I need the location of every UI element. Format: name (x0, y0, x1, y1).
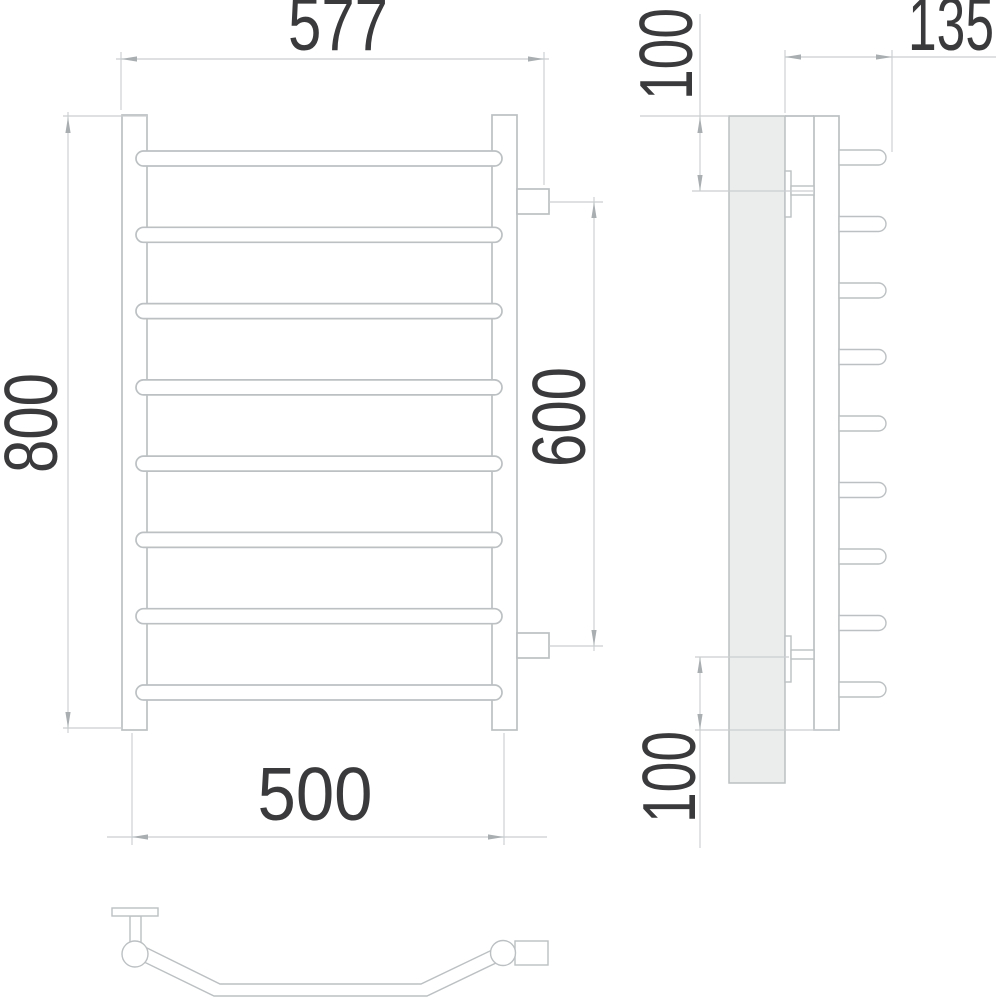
front-bars (136, 151, 502, 700)
side-bar-end (839, 150, 886, 165)
dimension-arrow (785, 54, 801, 59)
dim-label-bottom-width: 500 (258, 752, 373, 836)
dimension-arrow (697, 714, 702, 730)
side-bar-end (839, 416, 886, 431)
dimension-arrow (132, 834, 148, 839)
side-bar-end (839, 283, 886, 298)
bottom-bracket-plate (785, 636, 791, 682)
dimension-arrow (591, 202, 596, 218)
right-vertical-rail (492, 115, 517, 730)
side-view (729, 116, 886, 783)
front-view (122, 115, 549, 730)
technical-drawing-page: 577 800 600 500 135 100 100 (0, 0, 1000, 1000)
side-bar-end (839, 682, 886, 697)
towel-bar (136, 151, 502, 166)
dim-label-depth: 135 (908, 0, 994, 66)
detail-bracket-cap (112, 908, 158, 916)
dimension-arrow (697, 117, 702, 133)
rail-profile (814, 116, 839, 730)
dim-label-bottom-offset: 100 (627, 731, 711, 823)
right-pipe-section (491, 941, 516, 966)
wall-plate (729, 116, 785, 783)
side-bar-end (839, 350, 886, 365)
side-bar-end (839, 616, 886, 631)
bottom-connection-stub (517, 633, 549, 658)
side-bar-end (839, 217, 886, 232)
dim-label-top-offset: 100 (624, 8, 708, 100)
dimension-arrow (121, 56, 137, 61)
bottom-bracket-pin (791, 650, 814, 659)
side-bars (839, 150, 886, 697)
dimension-arrow (697, 175, 702, 191)
towel-bar (136, 532, 502, 547)
towel-bar (136, 609, 502, 624)
detail-connection-block (515, 941, 548, 965)
detail-bracket-stem (130, 916, 141, 943)
detail-view (112, 908, 548, 996)
side-bar-end (839, 549, 886, 564)
towel-rail-drawing: 577 800 600 500 135 100 100 (0, 0, 1000, 1000)
towel-bar (136, 227, 502, 242)
dim-label-overall-height: 800 (0, 373, 73, 473)
dimension-arrow (591, 630, 596, 646)
dim-label-overall-width: 577 (288, 0, 388, 66)
dimension-arrow (876, 54, 892, 59)
dim-label-connection-spacing: 600 (517, 367, 601, 467)
top-connection-stub (517, 189, 549, 214)
dimension-arrow (488, 834, 504, 839)
dimension-arrow (65, 117, 70, 133)
towel-bar (136, 380, 502, 395)
top-bracket-plate (785, 171, 791, 217)
dimension-arrow (65, 712, 70, 728)
dimension-arrow (697, 657, 702, 673)
towel-bar (136, 304, 502, 319)
left-vertical-rail (122, 115, 147, 730)
towel-bar (136, 456, 502, 471)
bent-bar-outline (140, 948, 498, 996)
dimension-arrow (528, 56, 544, 61)
left-pipe-section (122, 941, 148, 967)
towel-bar (136, 685, 502, 700)
side-bar-end (839, 483, 886, 498)
